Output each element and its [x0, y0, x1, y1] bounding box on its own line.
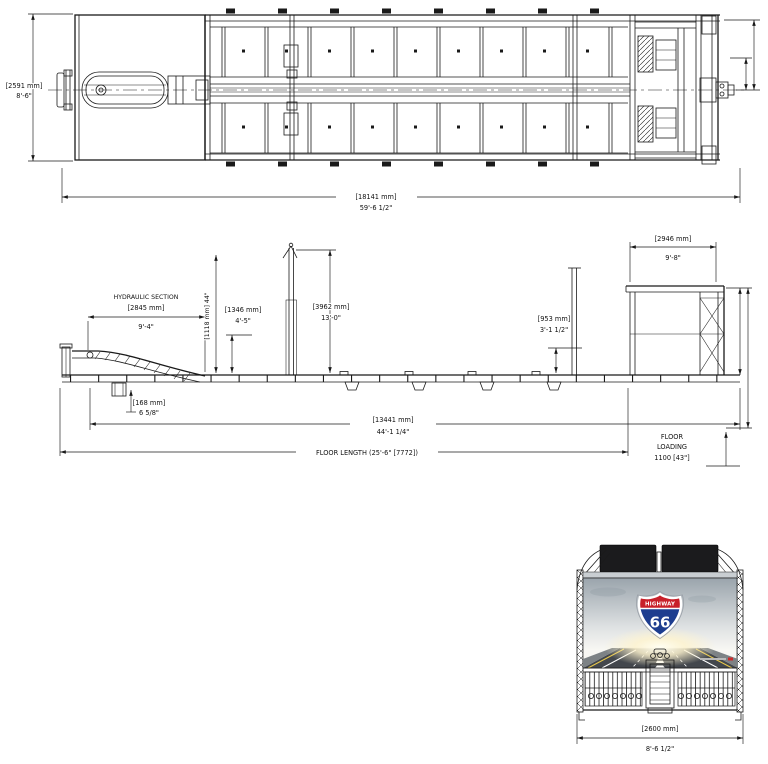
dim-top-width-mm: [2591 mm]	[6, 82, 43, 90]
dim-rear-width: [2600 mm] 8'-6 1/2"	[577, 714, 743, 753]
hydraulic-section-mm: [2845 mm]	[128, 304, 165, 312]
dim-overall-length-imp: 59'-6 1/2"	[360, 204, 393, 212]
dim-mid-height: [953 mm] 3'-1 1/2"	[538, 315, 582, 373]
side-view-gooseneck	[60, 344, 205, 396]
dim-main-length: [13441 mm] 44'-1 1/4"	[90, 388, 740, 436]
dim-overall-length-mm: [18141 mm]	[355, 193, 396, 201]
main-length-imp: 44'-1 1/4"	[377, 428, 410, 436]
rear-width-mm: [2600 mm]	[642, 725, 679, 733]
floor-loading-3: 1100 [43"]	[654, 454, 689, 462]
side-view-front-mast	[283, 243, 297, 375]
dim-floor-loading: FLOOR LOADING 1100 [43"]	[654, 432, 740, 466]
main-length-mm: [13441 mm]	[372, 416, 413, 424]
hydraulic-section-title: HYDRAULIC SECTION	[114, 294, 179, 301]
side-view-deck	[62, 372, 740, 391]
front-height-mm: [1346 mm]	[225, 306, 262, 314]
rear-top-imp: 9'-8"	[665, 254, 681, 262]
step-height-imp: 6 5/8"	[139, 409, 159, 417]
step-height-mm: [168 mm]	[133, 399, 166, 407]
top-view: [2591 mm] 8'-6" [18141 mm] 59'-6 1/2"	[6, 11, 760, 212]
rear-width-imp: 8'-6 1/2"	[646, 745, 674, 753]
mid-height-mm: [953 mm]	[538, 315, 571, 323]
mast-height-imp: 13'-0"	[321, 314, 341, 322]
side-view: HYDRAULIC SECTION [2845 mm] 9'-4" [1118 …	[60, 235, 752, 466]
floor-loading-2: LOADING	[657, 443, 687, 451]
rear-top-ramps	[600, 545, 718, 572]
dim-neck-height: [1118 mm] 44"	[204, 255, 216, 373]
dim-top-width-imp: 8'-6"	[16, 92, 32, 100]
floor-length-label: FLOOR LENGTH (25'-6" [7772])	[316, 449, 418, 457]
dim-step-height: [168 mm] 6 5/8"	[126, 390, 165, 417]
front-height-imp: 4'-5"	[235, 317, 251, 325]
top-view-width-dimension: [2591 mm] 8'-6"	[6, 14, 73, 161]
shield-66-text: 66	[650, 614, 671, 632]
mast-height-mm: [3962 mm]	[313, 303, 350, 311]
top-view-mid-fittings	[284, 15, 577, 160]
trailer-drawing: [2591 mm] 8'-6" [18141 mm] 59'-6 1/2"	[0, 0, 768, 764]
dim-rear-top: [2946 mm] 9'-8"	[630, 235, 716, 282]
dim-mast-height: [3962 mm] 13'-0"	[296, 250, 349, 373]
top-view-rear-dimension	[724, 20, 760, 90]
dim-rear-height-lines	[726, 288, 752, 428]
side-view-rear-structure	[626, 286, 724, 375]
dim-front-height: [1346 mm] 4'-5"	[225, 306, 262, 373]
top-view-front-frame	[75, 15, 205, 160]
floor-loading-1: FLOOR	[661, 433, 684, 441]
overall-length-dimension: [18141 mm] 59'-6 1/2"	[62, 168, 740, 212]
mid-height-imp: 3'-1 1/2"	[540, 326, 568, 334]
rear-view: HIGHWAY 66	[577, 545, 743, 753]
top-view-rear-assembly	[630, 15, 734, 164]
hydraulic-section-imp: 9'-4"	[138, 323, 154, 331]
shield-highway-text: HIGHWAY	[645, 602, 675, 608]
rear-top-mm: [2946 mm]	[655, 235, 692, 243]
neck-height-note: [1118 mm] 44"	[204, 292, 211, 339]
drawing-sheet: [2591 mm] 8'-6" [18141 mm] 59'-6 1/2"	[0, 0, 768, 764]
